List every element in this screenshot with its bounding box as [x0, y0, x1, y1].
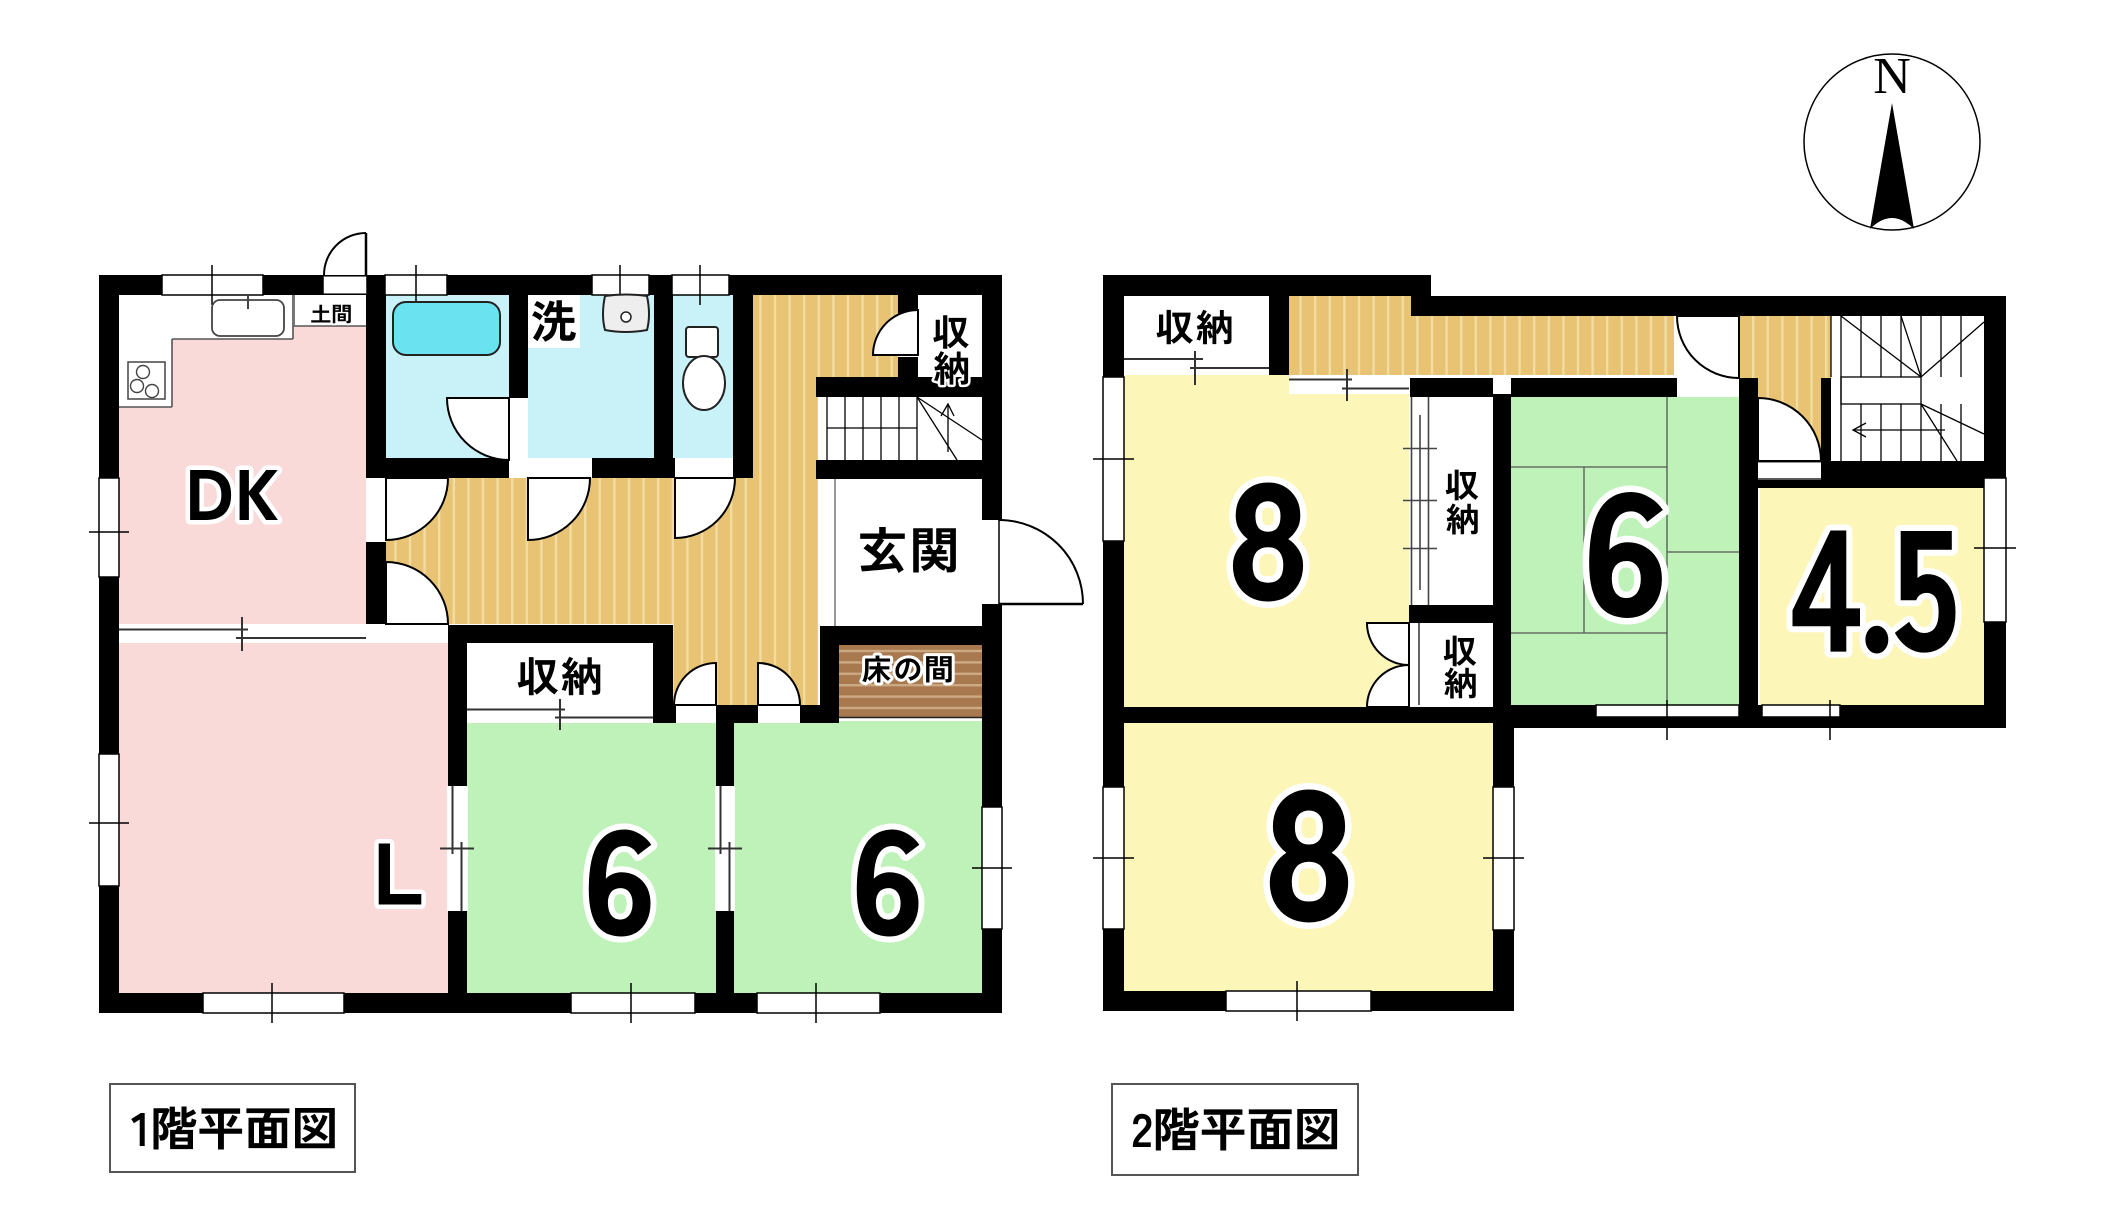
svg-text:N: N: [1873, 48, 1911, 105]
